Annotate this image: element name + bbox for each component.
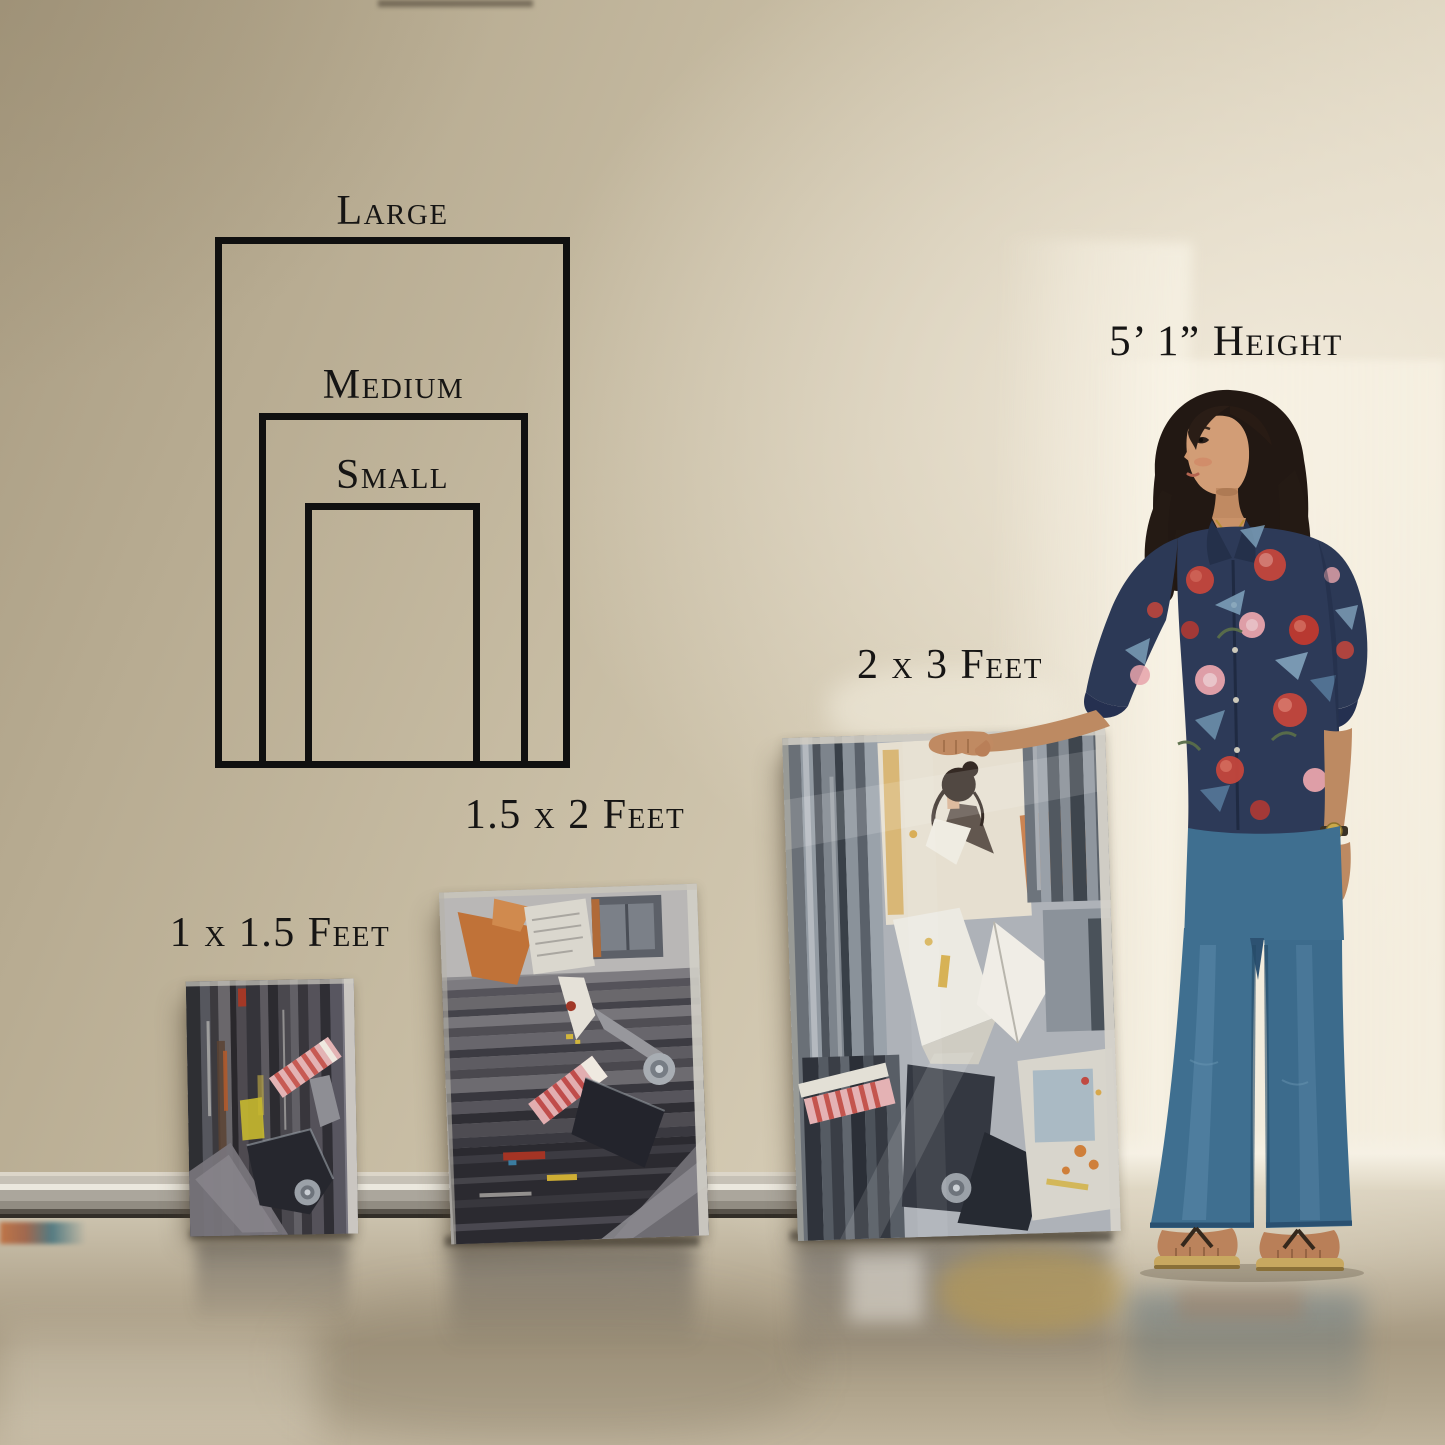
size-guide-scene: Large Medium Small 1 x 1.5 Feet 1.5 x 2 … bbox=[0, 0, 1445, 1445]
abstract-artwork-small bbox=[186, 979, 358, 1237]
right-arm bbox=[929, 710, 1110, 757]
floor-color-reflection bbox=[0, 1222, 86, 1244]
label-small-dimensions: 1 x 1.5 Feet bbox=[130, 912, 430, 954]
wall-smudge bbox=[378, 0, 533, 7]
reflection-person-skin bbox=[1178, 1288, 1303, 1320]
reflection-small-canvas bbox=[196, 1240, 348, 1324]
window-shape bbox=[591, 895, 663, 959]
person-illustration bbox=[900, 380, 1400, 1290]
label-small: Small bbox=[305, 454, 480, 496]
label-large: Large bbox=[215, 190, 570, 232]
flared-jeans bbox=[1150, 826, 1352, 1228]
abstract-artwork-medium bbox=[439, 884, 709, 1245]
canvas-print-small bbox=[186, 979, 358, 1237]
sandals bbox=[1140, 1228, 1364, 1282]
floral-blouse bbox=[1084, 520, 1367, 836]
label-medium: Medium bbox=[259, 364, 528, 406]
canvas-print-medium bbox=[439, 884, 709, 1245]
label-person-height: 5’ 1” Height bbox=[1050, 320, 1402, 363]
yellow-patch bbox=[240, 1097, 265, 1140]
label-medium-dimensions: 1.5 x 2 Feet bbox=[425, 794, 725, 836]
floor-light-streak bbox=[0, 1330, 320, 1445]
size-outline-small bbox=[305, 503, 480, 768]
person-figure bbox=[900, 380, 1400, 1290]
reflection-medium-canvas bbox=[450, 1244, 695, 1348]
white-sheet bbox=[524, 898, 595, 974]
